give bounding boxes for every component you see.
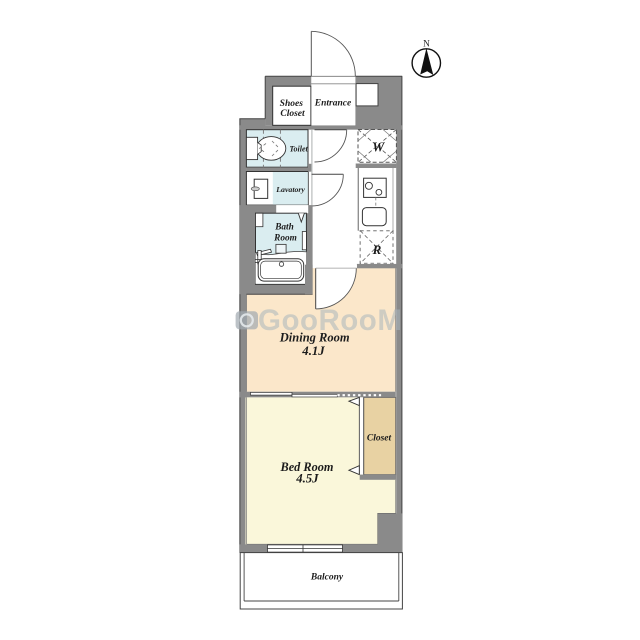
- svg-text:4.5J: 4.5J: [295, 471, 319, 485]
- svg-text:GooRooM: GooRooM: [258, 304, 402, 337]
- svg-text:R: R: [372, 242, 382, 257]
- svg-text:Lavatory: Lavatory: [275, 185, 305, 194]
- svg-text:N: N: [423, 40, 430, 50]
- svg-text:4.1J: 4.1J: [301, 344, 325, 358]
- svg-text:W: W: [372, 140, 385, 155]
- svg-text:Shoes: Shoes: [280, 99, 304, 109]
- svg-text:Closet: Closet: [280, 109, 305, 119]
- svg-text:Entrance: Entrance: [314, 98, 352, 108]
- svg-text:Toilet: Toilet: [289, 145, 308, 154]
- svg-text:Closet: Closet: [367, 434, 392, 444]
- svg-text:Room: Room: [273, 233, 297, 243]
- svg-text:Balcony: Balcony: [310, 572, 344, 582]
- svg-text:Bath: Bath: [274, 222, 294, 232]
